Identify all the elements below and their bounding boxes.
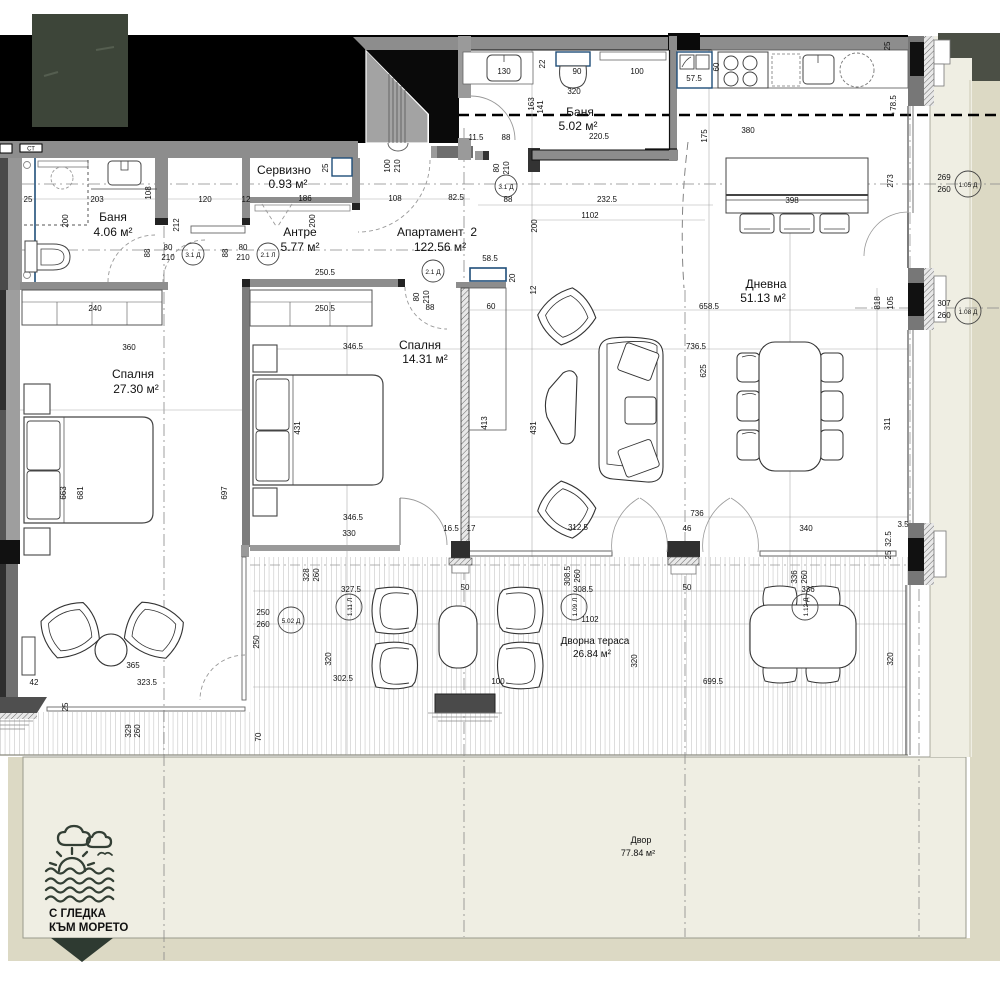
svg-text:1.11 Л: 1.11 Л: [347, 598, 354, 616]
svg-text:*: *: [891, 111, 894, 120]
svg-text:0.93 м²: 0.93 м²: [269, 177, 308, 191]
svg-text:14.31 м²: 14.31 м²: [402, 352, 448, 366]
svg-text:5.02 Д: 5.02 Д: [282, 618, 301, 625]
svg-text:330: 330: [342, 529, 356, 538]
svg-text:323.5: 323.5: [137, 678, 158, 687]
svg-text:658.5: 658.5: [699, 302, 720, 311]
svg-text:1.12 Д: 1.12 Д: [803, 597, 810, 616]
svg-text:329: 329: [124, 724, 133, 738]
svg-text:Дневна: Дневна: [745, 277, 786, 291]
svg-text:380: 380: [741, 126, 755, 135]
svg-text:Дворна тераса: Дворна тераса: [561, 636, 630, 647]
svg-text:413: 413: [480, 416, 489, 430]
svg-text:Апартамент 2: Апартамент 2: [397, 225, 477, 239]
svg-text:2.1 Л: 2.1 Л: [260, 252, 275, 259]
svg-text:336: 336: [790, 570, 799, 584]
svg-text:200: 200: [530, 219, 539, 233]
svg-text:302.5: 302.5: [333, 674, 354, 683]
svg-text:16.5: 16.5: [443, 524, 459, 533]
svg-text:307: 307: [937, 299, 951, 308]
svg-text:4.06 м²: 4.06 м²: [94, 225, 133, 239]
svg-text:210: 210: [161, 253, 175, 262]
svg-text:50: 50: [461, 583, 470, 592]
svg-text:Двор: Двор: [631, 835, 652, 845]
svg-text:17: 17: [467, 524, 476, 533]
svg-text:Баня: Баня: [99, 210, 127, 224]
svg-text:328: 328: [302, 568, 311, 582]
svg-text:210: 210: [502, 161, 511, 175]
svg-text:100: 100: [491, 677, 505, 686]
svg-text:681: 681: [76, 486, 85, 500]
svg-text:32.5: 32.5: [884, 531, 893, 547]
svg-text:3.1 Д: 3.1 Д: [185, 252, 201, 259]
svg-text:50: 50: [683, 583, 692, 592]
svg-text:203: 203: [90, 195, 104, 204]
svg-text:82.5: 82.5: [448, 193, 464, 202]
svg-text:58.5: 58.5: [482, 254, 498, 263]
svg-text:210: 210: [422, 290, 431, 304]
svg-text:1.05 Д: 1.05 Д: [959, 182, 978, 189]
svg-text:11.5: 11.5: [469, 133, 485, 142]
svg-text:250.5: 250.5: [315, 268, 336, 277]
svg-text:27.30 м²: 27.30 м²: [113, 382, 159, 396]
svg-text:78.5: 78.5: [889, 95, 898, 111]
svg-text:308.5: 308.5: [563, 565, 572, 586]
svg-text:1.08 Д: 1.08 Д: [959, 309, 978, 316]
svg-text:308.5: 308.5: [573, 585, 594, 594]
svg-text:320: 320: [630, 654, 639, 668]
svg-text:100: 100: [630, 67, 644, 76]
svg-text:46: 46: [683, 524, 692, 533]
svg-text:1102: 1102: [581, 211, 599, 220]
svg-text:269: 269: [937, 173, 951, 182]
svg-text:122.56 м²: 122.56 м²: [414, 240, 466, 254]
svg-text:220.5: 220.5: [589, 132, 610, 141]
svg-text:336: 336: [801, 585, 815, 594]
svg-text:25: 25: [884, 550, 893, 559]
svg-text:88: 88: [426, 303, 435, 312]
svg-text:212: 212: [172, 218, 181, 232]
svg-text:88: 88: [143, 248, 152, 257]
svg-text:736.5: 736.5: [686, 342, 707, 351]
svg-text:346.5: 346.5: [343, 513, 364, 522]
svg-text:431: 431: [293, 421, 302, 435]
svg-text:80: 80: [492, 163, 501, 172]
svg-text:250: 250: [252, 635, 261, 649]
svg-text:77.84 м²: 77.84 м²: [621, 848, 655, 858]
svg-text:60: 60: [712, 62, 721, 71]
svg-text:57.5: 57.5: [686, 74, 702, 83]
svg-text:25: 25: [321, 163, 330, 172]
svg-text:250.5: 250.5: [315, 304, 336, 313]
svg-text:12: 12: [242, 195, 251, 204]
svg-text:273: 273: [886, 174, 895, 188]
svg-text:186: 186: [298, 194, 312, 203]
svg-text:260: 260: [573, 569, 582, 583]
svg-text:80: 80: [239, 243, 248, 252]
svg-text:699.5: 699.5: [703, 677, 724, 686]
svg-text:100: 100: [383, 159, 392, 173]
svg-text:20: 20: [508, 273, 517, 282]
svg-text:5.02 м²: 5.02 м²: [559, 119, 598, 133]
svg-text:210: 210: [236, 253, 250, 262]
svg-text:312.5: 312.5: [568, 523, 589, 532]
svg-text:625: 625: [699, 364, 708, 378]
svg-text:260: 260: [937, 311, 951, 320]
svg-text:3.1 Д: 3.1 Д: [498, 184, 514, 191]
svg-text:88: 88: [221, 248, 230, 257]
svg-text:С ГЛЕДКА: С ГЛЕДКА: [49, 908, 106, 920]
svg-text:25: 25: [61, 702, 70, 711]
svg-text:250: 250: [256, 608, 270, 617]
svg-text:320: 320: [886, 652, 895, 666]
svg-text:1.09 Л: 1.09 Л: [572, 598, 579, 617]
svg-text:260: 260: [312, 568, 321, 582]
svg-text:42: 42: [30, 678, 39, 687]
svg-text:22: 22: [538, 59, 547, 68]
svg-text:88: 88: [502, 133, 511, 142]
svg-text:818: 818: [873, 296, 882, 310]
svg-text:КЪМ МОРЕТО: КЪМ МОРЕТО: [49, 922, 128, 934]
svg-text:70: 70: [254, 732, 263, 741]
svg-text:120: 120: [198, 195, 212, 204]
svg-text:105: 105: [886, 296, 895, 310]
svg-text:320: 320: [324, 652, 333, 666]
svg-text:3.5: 3.5: [897, 520, 909, 529]
svg-text:697: 697: [220, 486, 229, 500]
svg-text:398: 398: [785, 196, 799, 205]
svg-text:90: 90: [573, 67, 582, 76]
svg-text:1102: 1102: [581, 615, 599, 624]
svg-text:260: 260: [256, 620, 270, 629]
svg-text:Сервизно: Сервизно: [257, 163, 311, 177]
svg-text:141: 141: [536, 100, 545, 114]
svg-text:163: 163: [527, 97, 536, 111]
svg-text:240: 240: [88, 304, 102, 313]
svg-text:88: 88: [504, 195, 513, 204]
svg-text:260: 260: [133, 724, 142, 738]
svg-text:260: 260: [800, 570, 809, 584]
svg-text:232.5: 232.5: [597, 195, 618, 204]
svg-text:736: 736: [690, 509, 704, 518]
svg-text:60: 60: [487, 302, 496, 311]
svg-text:80: 80: [164, 243, 173, 252]
svg-text:5.77 м²: 5.77 м²: [281, 240, 320, 254]
svg-text:Спалня: Спалня: [112, 367, 154, 381]
svg-text:2.1 Д: 2.1 Д: [425, 269, 441, 276]
svg-text:Баня: Баня: [566, 105, 594, 119]
svg-text:130: 130: [497, 67, 511, 76]
svg-text:Спалня: Спалня: [399, 338, 441, 352]
svg-text:663: 663: [59, 486, 68, 500]
svg-text:431: 431: [529, 421, 538, 435]
svg-text:175: 175: [700, 129, 709, 143]
svg-text:200: 200: [61, 214, 70, 228]
svg-text:340: 340: [799, 524, 813, 533]
svg-text:360: 360: [122, 343, 136, 352]
svg-text:260: 260: [937, 185, 951, 194]
svg-text:210: 210: [393, 159, 402, 173]
svg-text:311: 311: [883, 417, 892, 430]
svg-text:108: 108: [144, 186, 153, 200]
svg-text:СТ: СТ: [27, 147, 35, 153]
svg-text:365: 365: [126, 661, 140, 670]
svg-text:200: 200: [308, 214, 317, 228]
svg-text:327.5: 327.5: [341, 585, 362, 594]
svg-text:320: 320: [567, 87, 581, 96]
svg-text:51.13 м²: 51.13 м²: [740, 291, 786, 305]
svg-text:12: 12: [529, 285, 538, 294]
svg-text:25: 25: [24, 195, 33, 204]
svg-text:346.5: 346.5: [343, 342, 364, 351]
svg-text:80: 80: [412, 292, 421, 301]
svg-text:108: 108: [388, 194, 402, 203]
svg-text:25: 25: [883, 41, 892, 50]
svg-text:26.84 м²: 26.84 м²: [573, 649, 612, 660]
